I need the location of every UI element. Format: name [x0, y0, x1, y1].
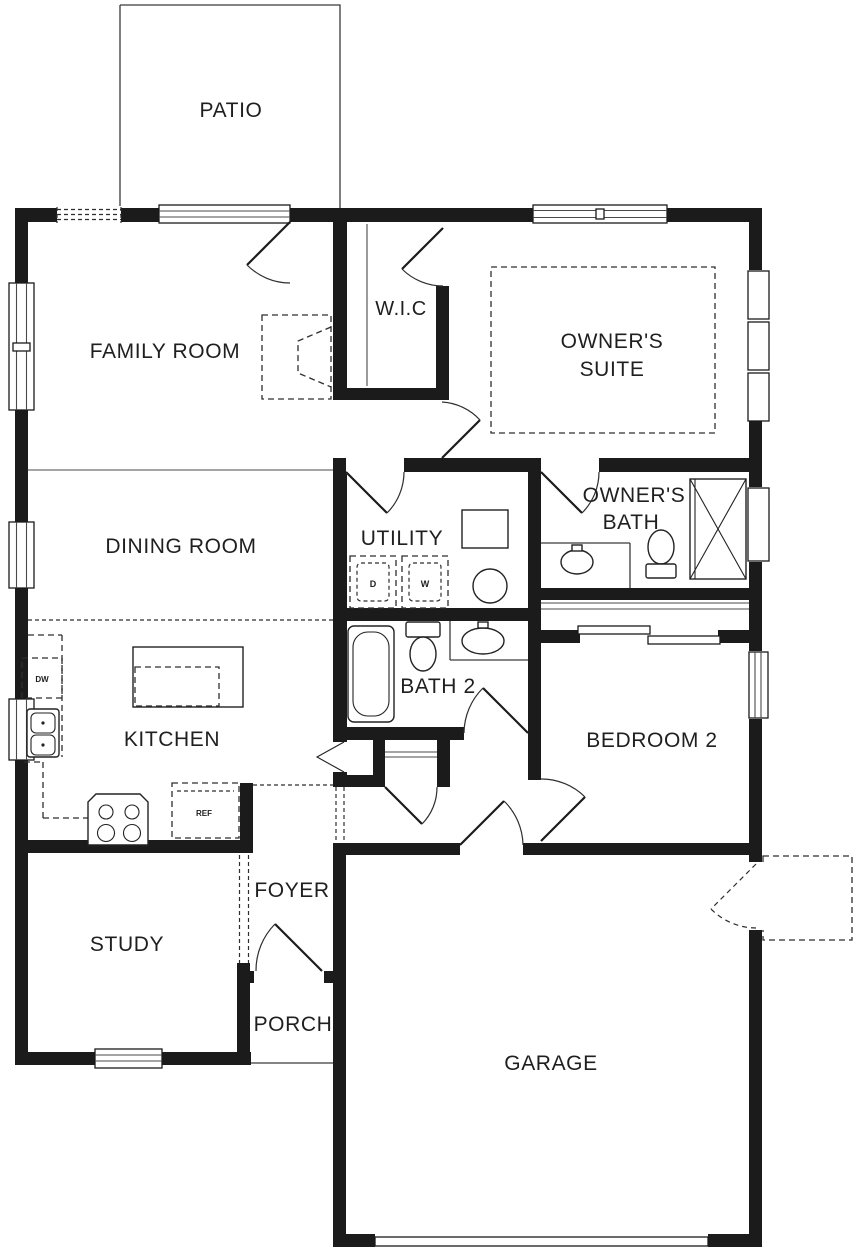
owners-bath-shower	[690, 479, 746, 579]
dryer-label: D	[370, 579, 377, 589]
water-heater	[473, 569, 507, 603]
bedroom2-window	[749, 652, 768, 718]
wic-label: W.I.C	[375, 298, 426, 320]
refrigerator-label: REF	[196, 809, 212, 818]
owners-bath-toilet	[646, 530, 676, 578]
foyer-label: FOYER	[254, 879, 329, 902]
dishwasher-label: DW	[35, 675, 49, 684]
bath2-tub	[348, 626, 394, 722]
family-room-label: FAMILY ROOM	[90, 340, 241, 363]
bedroom2-label: BEDROOM 2	[586, 729, 717, 752]
kitchen-island	[133, 647, 243, 707]
range	[88, 794, 148, 845]
owners-suite-side-windows	[748, 271, 769, 421]
utility-counter	[462, 510, 508, 548]
kitchen-label: KITCHEN	[124, 728, 220, 751]
owners-suite-label-line2: SUITE	[580, 358, 645, 381]
porch-label: PORCH	[254, 1013, 333, 1036]
owners-bath-window	[748, 488, 769, 561]
owners-suite-label-line1: OWNER'S	[561, 330, 664, 353]
bath2-label: BATH 2	[400, 675, 476, 698]
owners-bath-label-line1: OWNER'S	[583, 484, 686, 507]
dining-room-window	[9, 522, 34, 588]
patio-label: PATIO	[200, 99, 263, 122]
study-label: STUDY	[90, 933, 164, 956]
owners-bath-label-line2: BATH	[603, 511, 660, 534]
kitchen-sink	[27, 709, 59, 757]
dining-room-label: DINING ROOM	[105, 535, 256, 558]
washer-label: W	[421, 579, 430, 589]
utility-label: UTILITY	[361, 527, 443, 550]
family-room-window	[9, 283, 34, 410]
owners-suite-top-window	[533, 205, 667, 223]
patio-door-panel	[159, 205, 290, 223]
garage-door	[375, 1237, 708, 1246]
study-window	[95, 1049, 162, 1068]
floor-plan: DW REF D	[0, 0, 860, 1260]
floor-plan-page: DW REF D	[0, 0, 860, 1260]
garage-label: GARAGE	[504, 1052, 597, 1075]
